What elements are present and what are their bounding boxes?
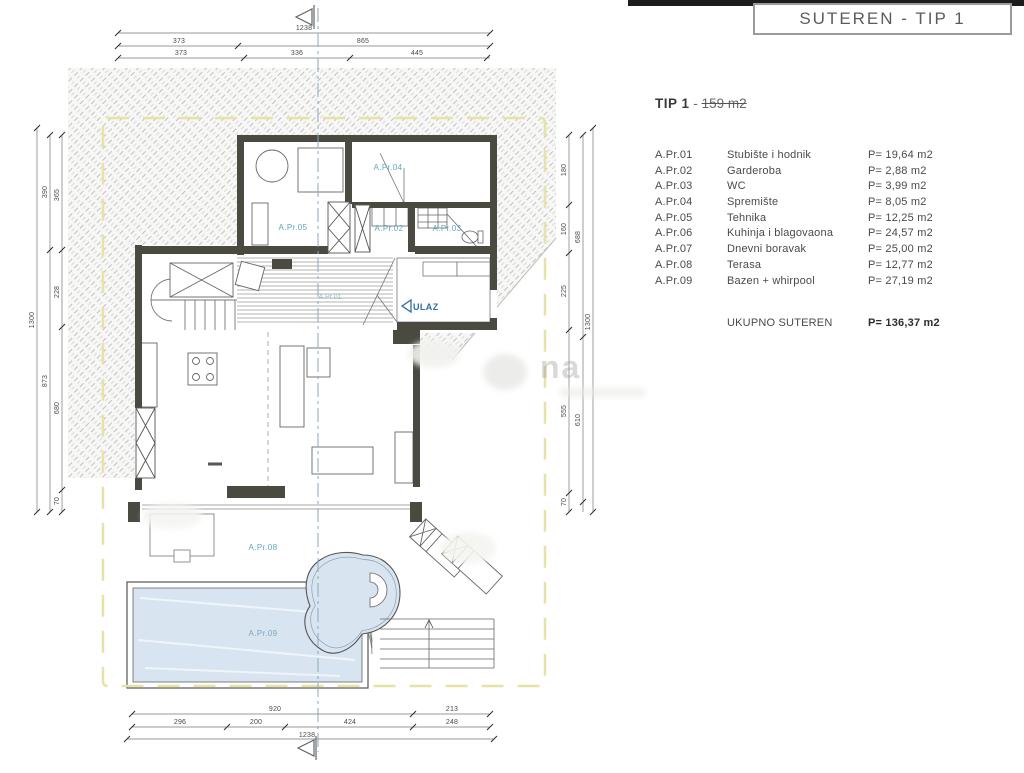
dim-label: 920 bbox=[269, 706, 281, 713]
dim-bottom-total: 1238 bbox=[299, 732, 315, 739]
legend-row: A.Pr.06 Kuhinja i blagovaona P= 24,57 m2 bbox=[655, 227, 1015, 243]
dim-label: 445 bbox=[411, 50, 423, 57]
room-area: P= 27,19 m2 bbox=[868, 275, 1015, 287]
room-area: P= 12,77 m2 bbox=[868, 259, 1015, 271]
room-name: Bazen + whirpool bbox=[727, 275, 868, 287]
room-label-apr01: A.Pr.01 bbox=[319, 294, 342, 301]
room-area: P= 12,25 m2 bbox=[868, 212, 1015, 224]
dim-label: 213 bbox=[446, 706, 458, 713]
room-code: A.Pr.06 bbox=[655, 227, 727, 239]
room-label-apr05: A.Pr.05 bbox=[278, 223, 307, 232]
dim-label: 248 bbox=[446, 719, 458, 726]
dim-label: 1300 bbox=[585, 314, 592, 330]
dim-label: 228 bbox=[54, 286, 61, 298]
type-area-struck: 159 m2 bbox=[702, 96, 747, 111]
room-label-apr02: A.Pr.02 bbox=[374, 224, 403, 233]
room-area: P= 2,88 m2 bbox=[868, 165, 1015, 177]
dim-label: 680 bbox=[54, 402, 61, 414]
room-area: P= 8,05 m2 bbox=[868, 196, 1015, 208]
room-code: A.Pr.08 bbox=[655, 259, 727, 271]
dim-label: 610 bbox=[575, 414, 582, 426]
room-area: P= 3,99 m2 bbox=[868, 180, 1015, 192]
room-name: Spremište bbox=[727, 196, 868, 208]
dim-label: 373 bbox=[175, 50, 187, 57]
dim-label: 296 bbox=[174, 719, 186, 726]
dim-label: 865 bbox=[357, 38, 369, 45]
room-area: P= 25,00 m2 bbox=[868, 243, 1015, 255]
legend-row: A.Pr.05 Tehnika P= 12,25 m2 bbox=[655, 212, 1015, 228]
room-label-apr08: A.Pr.08 bbox=[248, 543, 277, 552]
dim-label: 336 bbox=[291, 50, 303, 57]
room-name: Garderoba bbox=[727, 165, 868, 177]
exterior-stairs bbox=[380, 619, 494, 668]
watermark-text: na bbox=[540, 349, 581, 385]
room-name: Stubište i hodnik bbox=[727, 149, 868, 161]
plan-title: SUTEREN - TIP 1 bbox=[799, 9, 965, 29]
room-code: A.Pr.07 bbox=[655, 243, 727, 255]
dim-label: 424 bbox=[344, 719, 356, 726]
room-area: P= 24,57 m2 bbox=[868, 227, 1015, 239]
room-code: A.Pr.01 bbox=[655, 149, 727, 161]
room-name: Tehnika bbox=[727, 212, 868, 224]
page: 1238 373 865 373 336 445 920 213 296 200… bbox=[0, 0, 1024, 768]
room-area: P= 19,64 m2 bbox=[868, 149, 1015, 161]
room-label-apr09: A.Pr.09 bbox=[248, 629, 277, 638]
room-name: WC bbox=[727, 180, 868, 192]
total-label: UKUPNO SUTEREN bbox=[727, 317, 868, 329]
room-label-apr04: A.Pr.04 bbox=[373, 163, 402, 172]
legend-row: A.Pr.09 Bazen + whirpool P= 27,19 m2 bbox=[655, 275, 1015, 291]
type-separator: - bbox=[693, 96, 698, 111]
section-marker-icon bbox=[298, 736, 316, 760]
dim-label: 225 bbox=[561, 285, 568, 297]
dim-label: 555 bbox=[561, 405, 568, 417]
room-label-apr03: A.Pr.03 bbox=[432, 224, 461, 233]
dim-top-total: 1238 bbox=[296, 25, 312, 32]
legend-total-row: UKUPNO SUTEREN P= 136,37 m2 bbox=[655, 317, 1015, 329]
dim-label: 373 bbox=[173, 38, 185, 45]
dim-label: 1300 bbox=[29, 312, 36, 328]
dim-label: 390 bbox=[42, 186, 49, 198]
room-code: A.Pr.09 bbox=[655, 275, 727, 287]
legend-row: A.Pr.07 Dnevni boravak P= 25,00 m2 bbox=[655, 243, 1015, 259]
legend-row: A.Pr.01 Stubište i hodnik P= 19,64 m2 bbox=[655, 149, 1015, 165]
ulaz-label: ULAZ bbox=[413, 302, 439, 312]
dim-label: 70 bbox=[561, 498, 568, 506]
dim-label: 160 bbox=[561, 223, 568, 235]
room-code: A.Pr.05 bbox=[655, 212, 727, 224]
dim-label: 365 bbox=[54, 189, 61, 201]
dim-label: 70 bbox=[54, 497, 61, 505]
room-code: A.Pr.02 bbox=[655, 165, 727, 177]
dim-label: 688 bbox=[575, 231, 582, 243]
legend-row: A.Pr.04 Spremište P= 8,05 m2 bbox=[655, 196, 1015, 212]
type-label: TIP 1 bbox=[655, 96, 690, 111]
room-name: Terasa bbox=[727, 259, 868, 271]
legend-row: A.Pr.03 WC P= 3,99 m2 bbox=[655, 180, 1015, 196]
room-code: A.Pr.04 bbox=[655, 196, 727, 208]
room-name: Dnevni boravak bbox=[727, 243, 868, 255]
room-name: Kuhinja i blagovaona bbox=[727, 227, 868, 239]
dim-label: 180 bbox=[561, 164, 568, 176]
floor-plan-drawing: 1238 373 865 373 336 445 920 213 296 200… bbox=[0, 0, 650, 768]
legend-row: A.Pr.08 Terasa P= 12,77 m2 bbox=[655, 259, 1015, 275]
plan-title-box: SUTEREN - TIP 1 bbox=[753, 3, 1012, 35]
legend-row: A.Pr.02 Garderoba P= 2,88 m2 bbox=[655, 165, 1015, 181]
total-area: P= 136,37 m2 bbox=[868, 317, 1015, 329]
type-summary: TIP 1 - 159 m2 bbox=[655, 96, 747, 111]
room-code: A.Pr.03 bbox=[655, 180, 727, 192]
dim-label: 200 bbox=[250, 719, 262, 726]
room-legend: A.Pr.01 Stubište i hodnik P= 19,64 m2 A.… bbox=[655, 149, 1015, 329]
dim-label: 873 bbox=[42, 375, 49, 387]
